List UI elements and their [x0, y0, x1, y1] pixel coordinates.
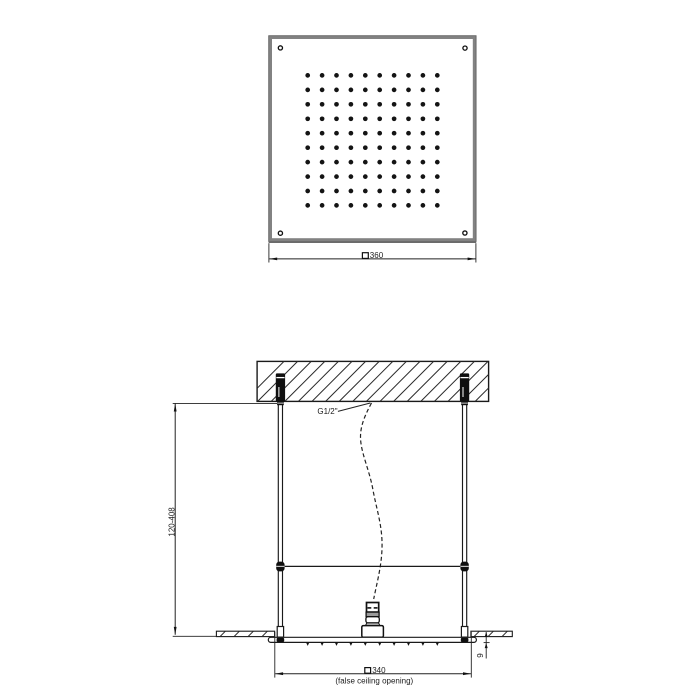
svg-text:120-408: 120-408 — [167, 507, 176, 537]
svg-text:(false ceiling opening): (false ceiling opening) — [335, 676, 413, 685]
svg-text:360: 360 — [370, 251, 384, 260]
svg-text:9: 9 — [476, 653, 485, 658]
svg-text:G1/2": G1/2" — [317, 407, 337, 416]
svg-text:340: 340 — [372, 666, 386, 675]
